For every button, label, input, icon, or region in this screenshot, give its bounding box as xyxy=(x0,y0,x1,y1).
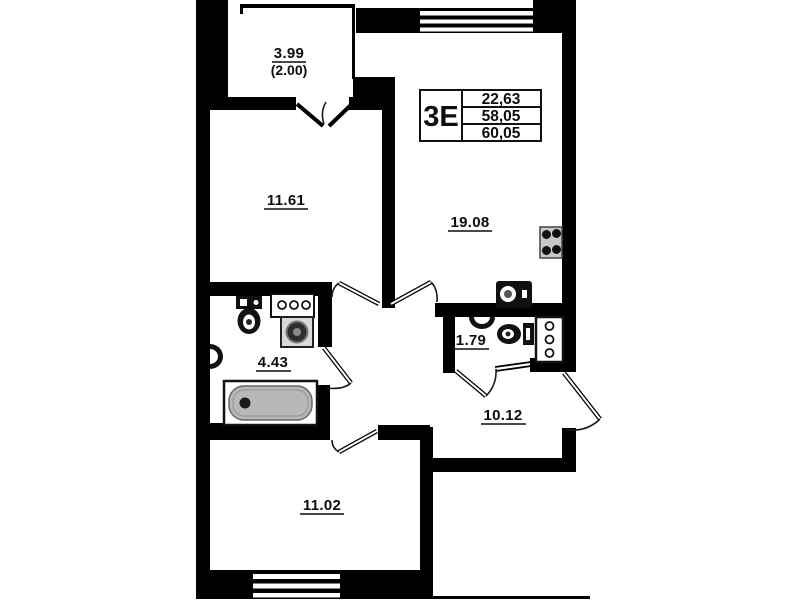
type-area-value-3: 60,05 xyxy=(482,125,521,142)
stove-icon xyxy=(540,227,562,258)
loggia-area-label: 3.99 xyxy=(274,45,304,62)
type-area-value-2: 58,05 xyxy=(482,108,521,125)
entrance-door-swing xyxy=(564,373,600,430)
room1-area-label: 11.61 xyxy=(267,192,305,209)
vanity-icon xyxy=(271,294,314,317)
hallway-area-label: 10.12 xyxy=(483,407,522,424)
wall-bathroom-right xyxy=(318,282,332,347)
wall-bottom-thin-line xyxy=(433,596,590,599)
bathroom-door-swing xyxy=(324,348,351,388)
loggia-coef-label: (2.00) xyxy=(271,62,308,78)
wall-balcony-divider xyxy=(210,97,296,110)
wall-top-right-block xyxy=(533,0,576,10)
wc-door-swing xyxy=(456,362,531,396)
type-area-value-1: 22,63 xyxy=(482,91,521,108)
wc-sink-icon xyxy=(469,317,495,329)
balcony-door-swing xyxy=(297,102,352,126)
kitchen-area-label: 19.08 xyxy=(450,214,489,231)
floor-plan: 3Е 22,63 58,05 60,05 3.99 (2.00) 11.61 1… xyxy=(0,0,799,600)
wall-right-lower xyxy=(562,428,576,472)
wall-room2-top xyxy=(378,425,430,440)
room2-area-label: 11.02 xyxy=(303,497,341,514)
apartment-type-box: 3Е 22,63 58,05 60,05 xyxy=(420,90,541,142)
kitchen-fixtures xyxy=(496,227,562,308)
wc-toilet-icon xyxy=(497,323,534,345)
wall-top-left-block xyxy=(196,0,228,103)
window-top xyxy=(420,11,533,32)
room2-door-swing xyxy=(332,431,377,452)
bathtub-icon xyxy=(224,381,317,425)
washing-machine-icon xyxy=(281,317,313,347)
room1-door-swing xyxy=(332,283,379,304)
apartment-type-label: 3Е xyxy=(423,101,458,133)
kitchen-sink-icon xyxy=(496,281,532,308)
bathroom-area-label: 4.43 xyxy=(258,354,288,371)
wall-hallway-bottom xyxy=(430,458,576,472)
kitchen-door-swing xyxy=(391,282,437,304)
floor-plan-svg: 3Е 22,63 58,05 60,05 3.99 (2.00) 11.61 1… xyxy=(0,0,799,600)
window-bottom xyxy=(253,574,340,598)
utility-shaft-icon xyxy=(536,317,563,362)
wall-sink-icon xyxy=(210,344,223,369)
wall-room-divider xyxy=(382,103,395,308)
wc-area-label: 1.79 xyxy=(456,332,486,349)
toilet-icon xyxy=(236,296,262,334)
wall-room2-right xyxy=(420,427,433,599)
wall-wc-left xyxy=(443,317,455,373)
wall-left xyxy=(196,100,210,599)
